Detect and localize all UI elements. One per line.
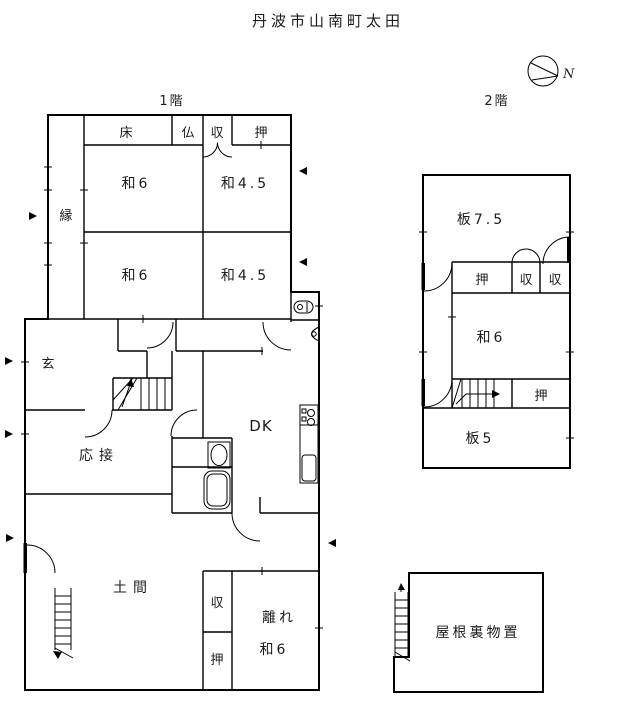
corner-basin-icon [312, 327, 320, 341]
staircase-1f-icon [113, 378, 165, 410]
room-label-oshiire-upper-2f: 押 [475, 273, 488, 288]
room-label-ita75: 板7.5 [457, 212, 505, 228]
washbasin-icon [208, 442, 230, 468]
floor2-door-leaf-lower [422, 379, 426, 406]
room-label-wa6-upper: 和6 [122, 176, 151, 192]
room-label-shuno-b-2f: 収 [548, 273, 561, 288]
doma-ladder-icon [53, 588, 73, 659]
room-label-oshiire-lower-2f: 押 [534, 389, 547, 404]
room-label-ousetsu: 応接 [79, 447, 119, 464]
room-label-engawa: 縁 [59, 208, 72, 224]
room-label-toko: 床 [119, 126, 132, 141]
opening-arrow-east-wa45-upper [299, 167, 307, 175]
north-label: N [562, 67, 575, 82]
room-label-oshiire-top: 押 [254, 126, 267, 141]
floor1-label: 1階 [159, 94, 184, 109]
floor1-window-dashes [205, 351, 232, 467]
floor1-plan: 床 仏 収 押 縁 和6 和4.5 和6 和4.5 玄 応接 DK 土間 収 押… [21, 115, 323, 690]
floor1-door-arcs [27, 143, 291, 574]
room-label-shuno-hanare: 収 [210, 596, 223, 611]
floor2-door-leaf-right [567, 237, 571, 263]
kitchen-counter-icon [300, 405, 318, 483]
doma-door-leaf [24, 543, 28, 573]
attic-plan: 屋根裏物置 [394, 573, 543, 692]
floor2-label: 2階 [484, 94, 509, 109]
opening-arrow-west-doma [6, 534, 14, 542]
room-label-ita5: 板5 [466, 431, 495, 447]
opening-arrows [5, 167, 336, 547]
opening-arrow-west-ousetsu [5, 430, 13, 438]
floorplan-page: 丹波市山南町太田 1階 2階 N [0, 0, 636, 725]
floorplan-drawing: 丹波市山南町太田 1階 2階 N [0, 0, 636, 725]
room-label-wa6-2f: 和6 [477, 330, 506, 346]
room-label-wa6-lower: 和6 [122, 268, 151, 284]
room-label-oshiire-hanare: 押 [210, 653, 223, 668]
opening-arrow-west-engawa [29, 212, 37, 220]
attic-ladder-icon [395, 583, 410, 661]
north-compass-icon: N [528, 56, 575, 86]
opening-arrow-east-wa45-lower [299, 258, 307, 266]
bathtub-icon [204, 471, 230, 509]
page-title: 丹波市山南町太田 [252, 12, 404, 30]
room-label-shuno-a-2f: 収 [519, 273, 532, 288]
room-label-wa45-lower: 和4.5 [221, 268, 269, 284]
toilet-icon [294, 301, 313, 313]
opening-arrow-west-genkan [5, 357, 13, 365]
room-label-attic: 屋根裏物置 [436, 624, 521, 641]
floor2-door-leaf-upper [422, 263, 426, 290]
floor2-plan: 板7.5 押 収 収 和6 押 板5 [419, 175, 574, 468]
room-label-doma: 土間 [113, 580, 153, 596]
staircase-2f-icon [452, 379, 500, 408]
room-label-genkan: 玄 [41, 357, 54, 372]
opening-arrow-east-doma [328, 539, 336, 547]
room-label-hanare-wa6: 和6 [260, 642, 289, 658]
room-label-shuno-top: 収 [210, 126, 223, 141]
room-label-wa45-upper: 和4.5 [221, 176, 269, 192]
room-label-hanare: 離れ [262, 609, 296, 626]
room-label-dk: DK [249, 417, 273, 435]
room-label-butsudan: 仏 [181, 126, 194, 141]
